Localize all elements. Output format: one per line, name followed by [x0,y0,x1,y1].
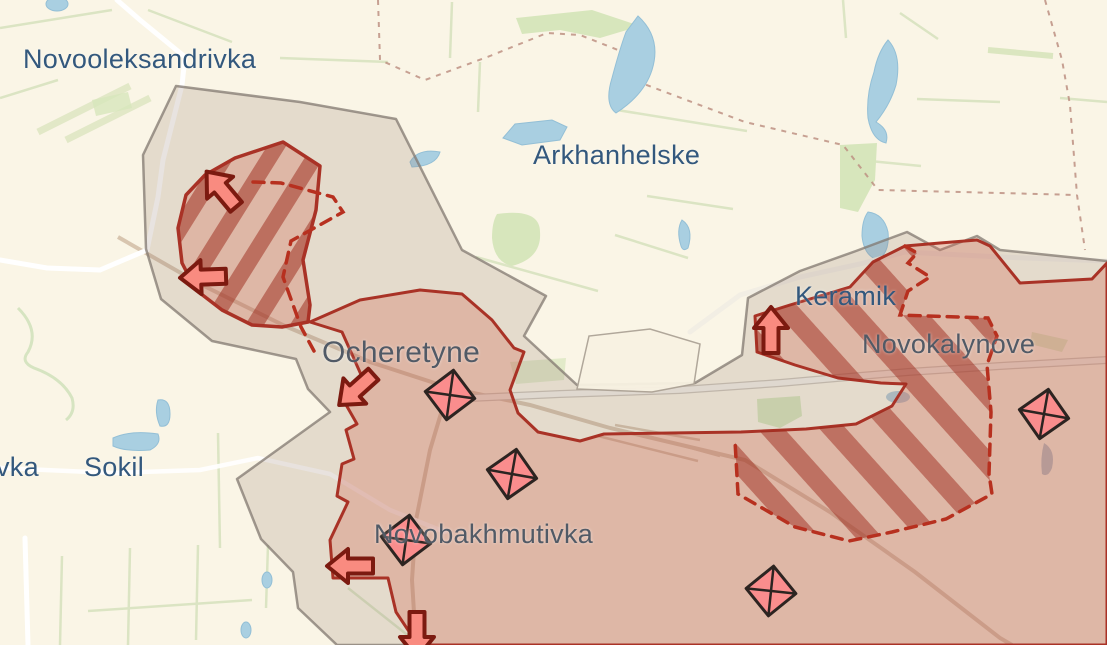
road [0,250,147,270]
creek-outline [18,308,73,420]
pond [241,622,251,638]
pond [46,0,68,11]
pond [262,572,272,588]
road [25,538,28,645]
pond [679,220,690,250]
admin-boundaries [378,0,1085,250]
map-svg [0,0,1107,645]
lake [868,40,898,143]
lake [503,120,567,145]
settlement-footprint [577,329,700,392]
map-canvas[interactable]: Novooleksandrivka Arkhanhelske Keramik N… [0,0,1107,645]
lake [113,433,159,451]
pond [156,400,170,426]
